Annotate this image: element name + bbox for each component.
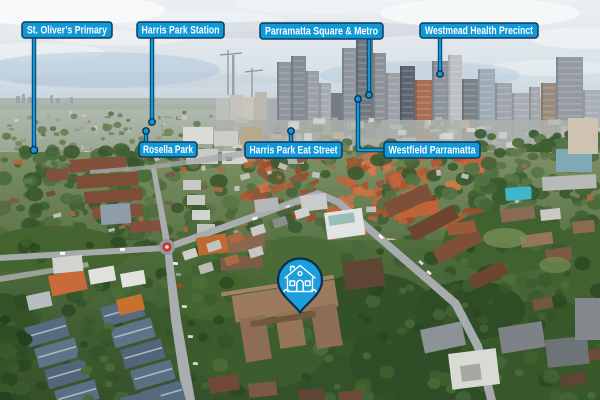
svg-text:Rosella Park: Rosella Park	[143, 144, 194, 156]
svg-text:Harris Park Station: Harris Park Station	[142, 25, 220, 37]
svg-text:St. Oliver’s Primary: St. Oliver’s Primary	[27, 25, 107, 37]
svg-text:Westmead Health Precinct: Westmead Health Precinct	[425, 25, 533, 37]
svg-text:Westfield Parramatta: Westfield Parramatta	[389, 145, 477, 157]
svg-text:Parramatta Square & Metro: Parramatta Square & Metro	[265, 26, 378, 38]
svg-text:Harris Park Eat Street: Harris Park Eat Street	[250, 145, 338, 157]
